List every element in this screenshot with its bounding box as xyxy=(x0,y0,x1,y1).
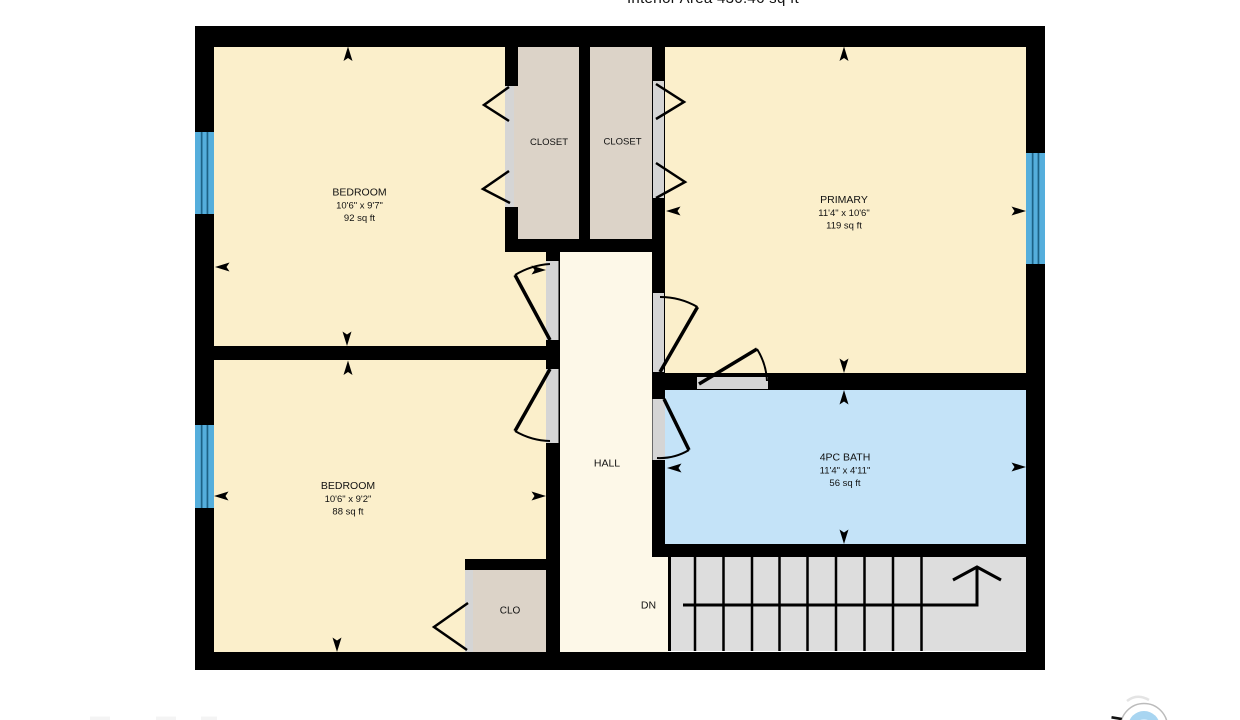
svg-text:CLOSET: CLOSET xyxy=(530,137,568,148)
svg-text:PRIMARY: PRIMARY xyxy=(820,194,868,206)
svg-text:56 sq ft: 56 sq ft xyxy=(829,478,861,489)
svg-text:BEDROOM: BEDROOM xyxy=(332,187,386,199)
svg-text:88 sq ft: 88 sq ft xyxy=(332,507,364,518)
svg-text:10'6" x 9'7": 10'6" x 9'7" xyxy=(336,201,383,212)
svg-text:4PC BATH: 4PC BATH xyxy=(820,452,871,464)
svg-text:CLOSET: CLOSET xyxy=(603,137,641,148)
svg-text:HALL: HALL xyxy=(594,458,620,470)
svg-text:11'4" x 4'11": 11'4" x 4'11" xyxy=(820,466,871,477)
svg-text:92 sq ft: 92 sq ft xyxy=(344,213,376,224)
svg-text:DN: DN xyxy=(641,600,656,612)
svg-text:BEDROOM: BEDROOM xyxy=(321,480,375,492)
svg-text:Interior Area 430.46 sq ft: Interior Area 430.46 sq ft xyxy=(627,0,800,7)
svg-text:11'4" x 10'6": 11'4" x 10'6" xyxy=(818,208,869,219)
svg-text:CLO: CLO xyxy=(500,606,521,617)
svg-text:10'6" x 9'2": 10'6" x 9'2" xyxy=(325,494,372,505)
svg-text:119 sq ft: 119 sq ft xyxy=(826,221,862,232)
